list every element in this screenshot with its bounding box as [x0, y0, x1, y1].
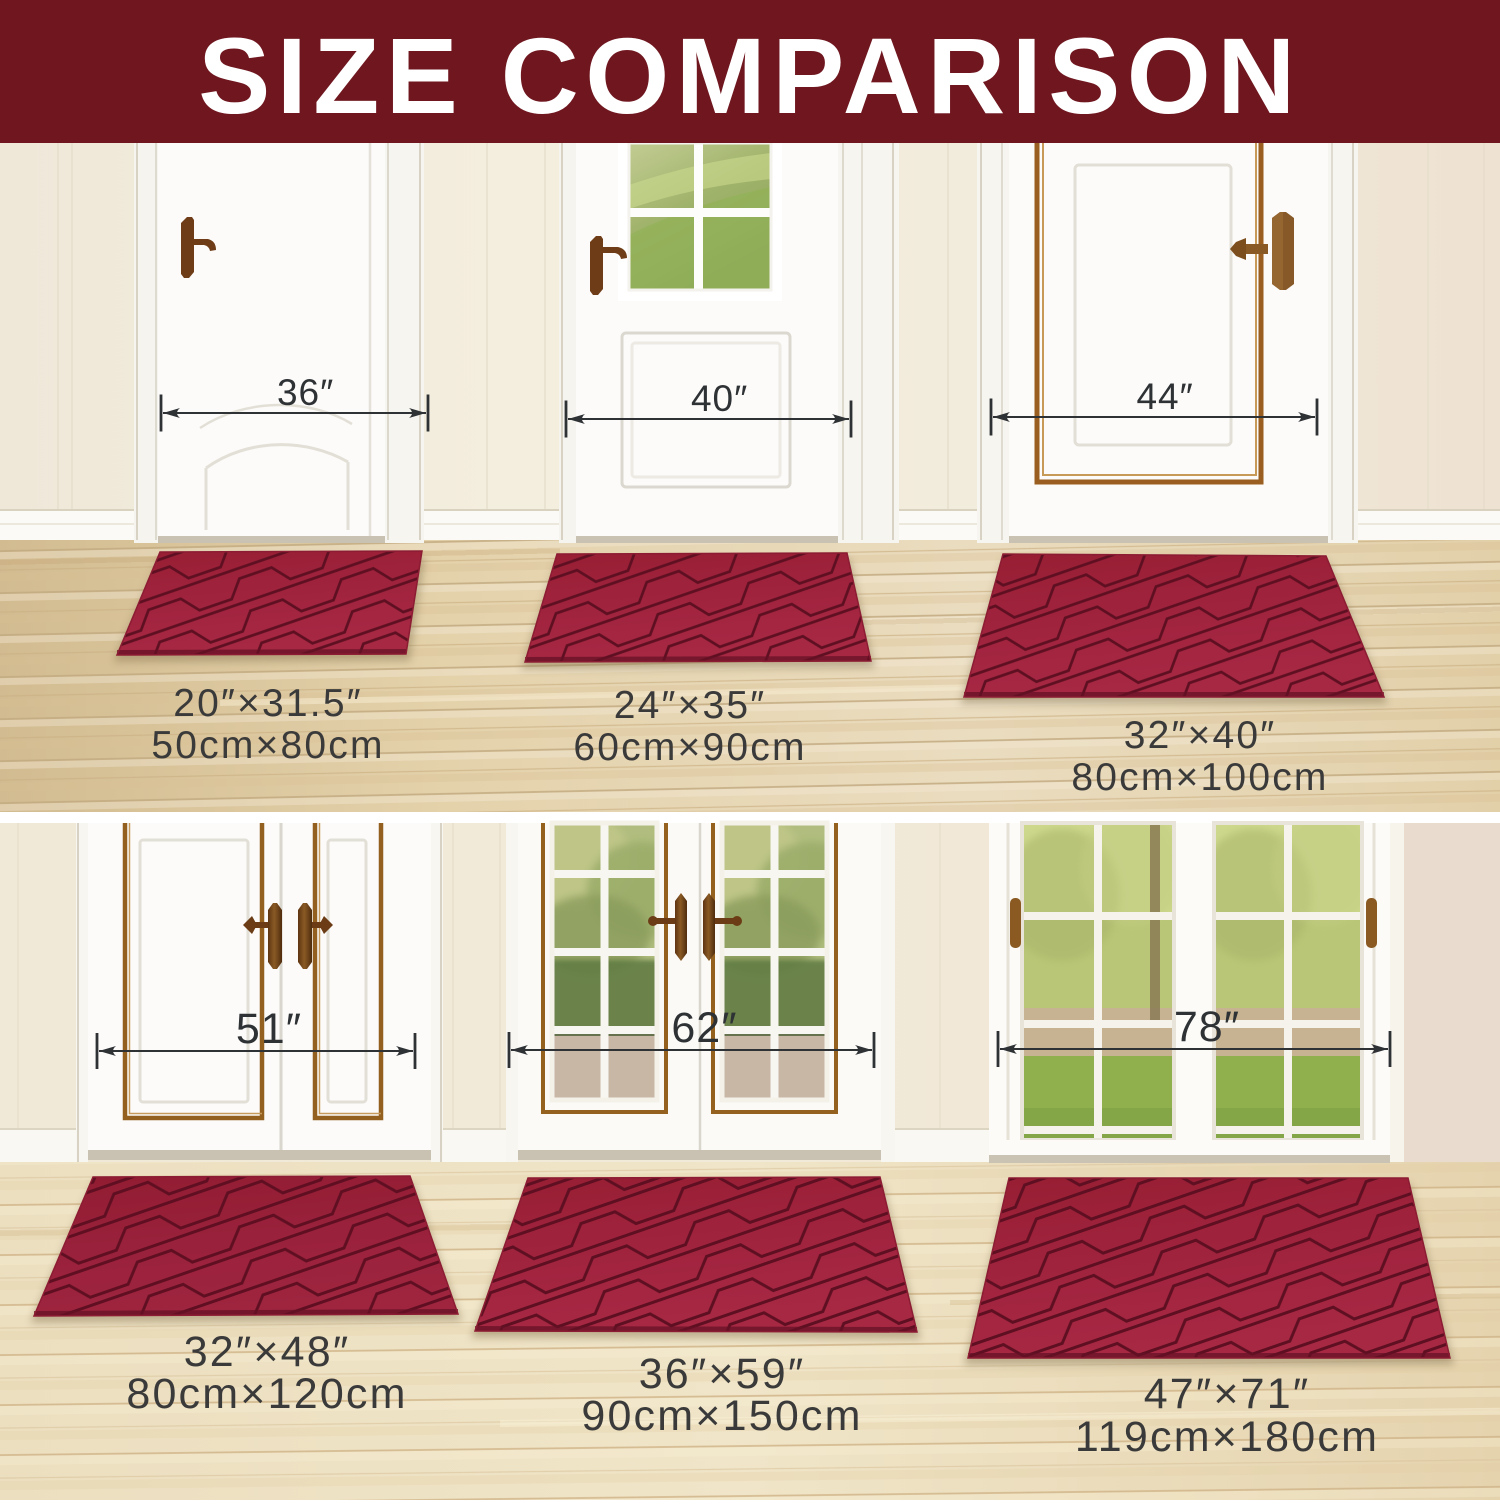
svg-text:SIZE COMPARISON: SIZE COMPARISON — [198, 15, 1302, 136]
svg-text:51″: 51″ — [236, 1005, 302, 1053]
svg-text:24″×35″: 24″×35″ — [614, 684, 767, 727]
svg-text:40″: 40″ — [691, 378, 748, 419]
svg-text:119cm×180cm: 119cm×180cm — [1075, 1413, 1379, 1461]
svg-text:78″: 78″ — [1174, 1003, 1240, 1051]
svg-text:60cm×90cm: 60cm×90cm — [573, 726, 806, 769]
svg-text:90cm×150cm: 90cm×150cm — [581, 1392, 862, 1440]
svg-text:47″×71″: 47″×71″ — [1144, 1370, 1311, 1418]
svg-text:80cm×120cm: 80cm×120cm — [126, 1370, 407, 1418]
svg-text:44″: 44″ — [1136, 376, 1193, 417]
svg-text:50cm×80cm: 50cm×80cm — [151, 724, 384, 767]
svg-text:32″×40″: 32″×40″ — [1124, 714, 1277, 757]
svg-text:80cm×100cm: 80cm×100cm — [1071, 756, 1328, 799]
svg-text:32″×48″: 32″×48″ — [184, 1328, 351, 1376]
svg-text:36″×59″: 36″×59″ — [639, 1350, 806, 1398]
svg-text:62″: 62″ — [671, 1004, 737, 1052]
svg-text:20″×31.5″: 20″×31.5″ — [173, 682, 362, 725]
svg-text:36″: 36″ — [277, 372, 334, 413]
